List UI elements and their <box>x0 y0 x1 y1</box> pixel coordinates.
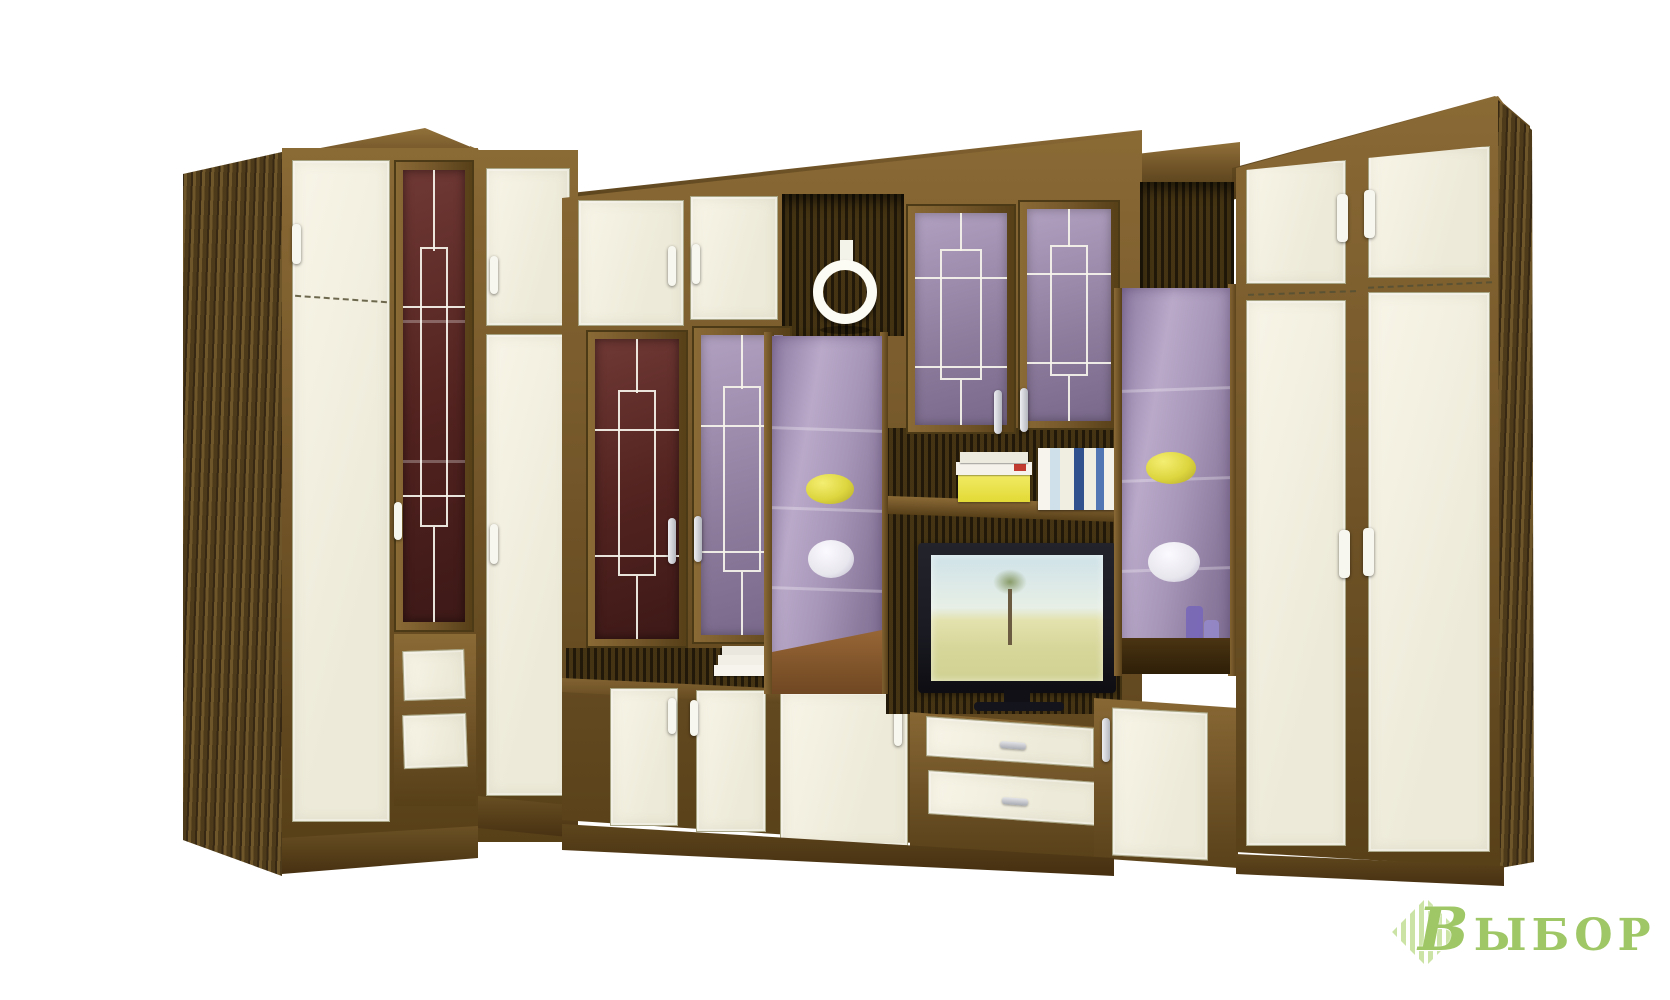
mid-glass-handle-2 <box>694 516 702 562</box>
left-wardrobe-door <box>292 160 390 822</box>
glass-shelf-line <box>772 426 882 433</box>
glass-shelf-line <box>772 506 882 513</box>
stacked-book <box>960 452 1028 463</box>
bottom-door-2-handle <box>690 700 698 736</box>
cabinet-base-floor <box>772 622 882 694</box>
lattice-line <box>618 390 657 576</box>
right-wardrobe-b-main-door <box>1368 292 1490 852</box>
mid-glass-handle-1 <box>668 518 676 564</box>
upper-glass-handle-1 <box>994 390 1002 434</box>
tv-tree-trunk <box>1008 589 1012 645</box>
lattice-pattern <box>595 339 679 639</box>
corner-main-door <box>486 334 570 796</box>
glass-shelf-line <box>403 320 465 323</box>
white-vase <box>1148 542 1200 582</box>
left-display-handle <box>394 502 402 540</box>
standing-books <box>1038 448 1114 510</box>
corner-main-door-handle <box>490 524 498 564</box>
lattice-line <box>636 339 638 393</box>
lattice-line <box>1027 273 1111 275</box>
lattice-line <box>433 170 435 251</box>
white-vase <box>808 540 854 578</box>
top-cabinet-handle-2 <box>692 244 700 284</box>
curved-cabinet-right-stile-a <box>1114 288 1122 676</box>
lattice-line <box>420 247 449 527</box>
lattice-line <box>915 366 1007 368</box>
lattice-line <box>940 249 982 380</box>
lattice-line <box>1068 209 1070 247</box>
left-drawer-1 <box>402 649 466 701</box>
lattice-line <box>741 572 743 635</box>
lattice-line <box>1027 362 1111 364</box>
ring-ornament-tab <box>840 240 853 262</box>
right-lower-cabinet-handle <box>1102 718 1110 762</box>
right-wardrobe-a-top-door <box>1246 160 1346 284</box>
upper-glass-door-2 <box>1027 209 1111 421</box>
lattice-line <box>915 277 1007 279</box>
right-wardrobe-a-main-door <box>1246 300 1346 846</box>
corner-top-door <box>486 168 570 326</box>
left-display-glass <box>403 170 465 622</box>
yellow-vase <box>806 474 854 504</box>
top-cabinet-door-2 <box>690 196 778 320</box>
left-drawer-2 <box>402 713 468 769</box>
ring-ornament-shadow <box>820 326 870 334</box>
lattice-line <box>595 429 679 431</box>
left-side-panel <box>183 150 282 876</box>
watermark: Выбор <box>1392 892 1652 972</box>
bottom-door-2 <box>696 690 766 832</box>
lattice-line <box>636 576 638 639</box>
glass-shelf-line <box>772 586 882 593</box>
lattice-line <box>433 527 435 622</box>
lattice-line <box>960 380 962 425</box>
lattice-line <box>723 386 761 572</box>
glass-shelf-line <box>403 460 465 463</box>
lattice-line <box>595 555 679 557</box>
yellow-vase <box>1146 452 1196 484</box>
right-display-niche <box>1140 182 1234 292</box>
lattice-line <box>741 335 743 389</box>
right-wardrobe-a-main-handle <box>1339 530 1350 578</box>
watermark-text: Выбор <box>1418 900 1648 960</box>
book-red-label <box>1014 464 1026 471</box>
right-wardrobe-b-top-door <box>1368 146 1490 278</box>
upper-glass-handle-2 <box>1020 388 1028 432</box>
top-cabinet-handle-1 <box>668 246 676 286</box>
lattice-pattern <box>1027 209 1111 421</box>
glass-shelf-line <box>1122 386 1230 393</box>
right-side-panel <box>1498 96 1534 870</box>
lattice-pattern <box>403 170 465 622</box>
right-wardrobe-b-main-handle <box>1363 528 1374 576</box>
mid-glass-door-1 <box>595 339 679 639</box>
right-wardrobe-a-top-handle <box>1337 194 1348 242</box>
cabinet-base-floor <box>1122 638 1230 674</box>
curved-display-cabinet-right <box>1122 288 1230 674</box>
right-lower-cabinet-door <box>1112 707 1208 860</box>
right-wardrobe-b-top-handle <box>1364 190 1375 238</box>
tv-screen <box>931 555 1103 681</box>
bottom-door-3 <box>780 692 908 846</box>
tv-stand-base <box>974 702 1064 711</box>
bottom-door-1-handle <box>668 698 676 734</box>
corner-top-door-handle <box>490 256 498 294</box>
curved-display-cabinet-left <box>772 336 882 694</box>
lattice-line <box>403 495 465 497</box>
lattice-line <box>960 213 962 251</box>
furniture-photo-stage: Выбор <box>0 0 1670 1000</box>
left-door-handle <box>292 224 301 264</box>
lattice-line <box>1068 376 1070 421</box>
lattice-line <box>1050 245 1089 376</box>
ring-ornament <box>813 260 877 324</box>
lattice-line <box>403 306 465 308</box>
yellow-box <box>958 474 1030 502</box>
